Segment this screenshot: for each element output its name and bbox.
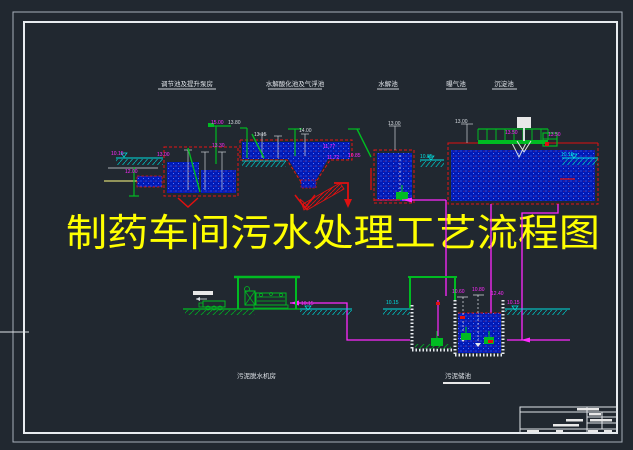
caption-dewatering: 污泥脱水机房 xyxy=(237,371,276,380)
elevation-label: 15.00 xyxy=(211,120,224,126)
section-label-2: 水解酸化池及气浮池 xyxy=(266,79,325,88)
waterline-right xyxy=(562,159,598,165)
elevation-label: 13.80 xyxy=(228,120,241,126)
section-label-5: 沉淀池 xyxy=(494,79,514,88)
waterline-mid xyxy=(420,161,444,167)
elevation-label: 11.77 xyxy=(323,144,335,150)
caption-storage: 污泥储池 xyxy=(445,371,472,380)
elevation-label: 13.30 xyxy=(212,143,225,149)
elevation-label: 10.15 xyxy=(386,300,399,306)
elevation-label: 12.00 xyxy=(125,169,138,175)
elevation-label: 11.72 xyxy=(327,155,339,161)
elevation-label: 13.00 xyxy=(157,152,170,158)
waterline-left xyxy=(116,159,163,165)
cad-canvas: 调节池及提升泵房 水解酸化池及气浮池 水解池 曝气池 沉淀池 10.15 12.… xyxy=(0,0,633,450)
elevation-label: 14.00 xyxy=(299,128,312,134)
elevation-label: 13.50 xyxy=(505,130,518,136)
elevation-label: 10.60 xyxy=(452,289,465,295)
elevation-label: 10.80 xyxy=(472,287,485,293)
elevation-label: 10.15 xyxy=(561,152,574,158)
section-label-1: 调节池及提升泵房 xyxy=(161,79,213,88)
elevation-label: 13.15 xyxy=(254,132,267,138)
elevation-label: 13.50 xyxy=(548,132,561,138)
caption-underline xyxy=(443,382,490,384)
section-label-4: 曝气池 xyxy=(446,79,466,88)
elevation-label: 10.15 xyxy=(507,300,520,306)
elevation-label: 12.40 xyxy=(491,291,504,297)
elevation-label: 10.85 xyxy=(348,153,361,159)
elevation-label: 13.00 xyxy=(388,121,401,127)
elevation-label: 13.00 xyxy=(455,119,468,125)
elevation-label: 10.15 xyxy=(111,151,124,157)
drawing-title: 制药车间污水处理工艺流程图 xyxy=(66,213,600,255)
elevation-label: 10.85 xyxy=(420,154,433,160)
section-label-3: 水解池 xyxy=(378,79,398,88)
submersible-pump-1 xyxy=(461,333,471,340)
elevation-label: 10.15 xyxy=(301,301,314,307)
